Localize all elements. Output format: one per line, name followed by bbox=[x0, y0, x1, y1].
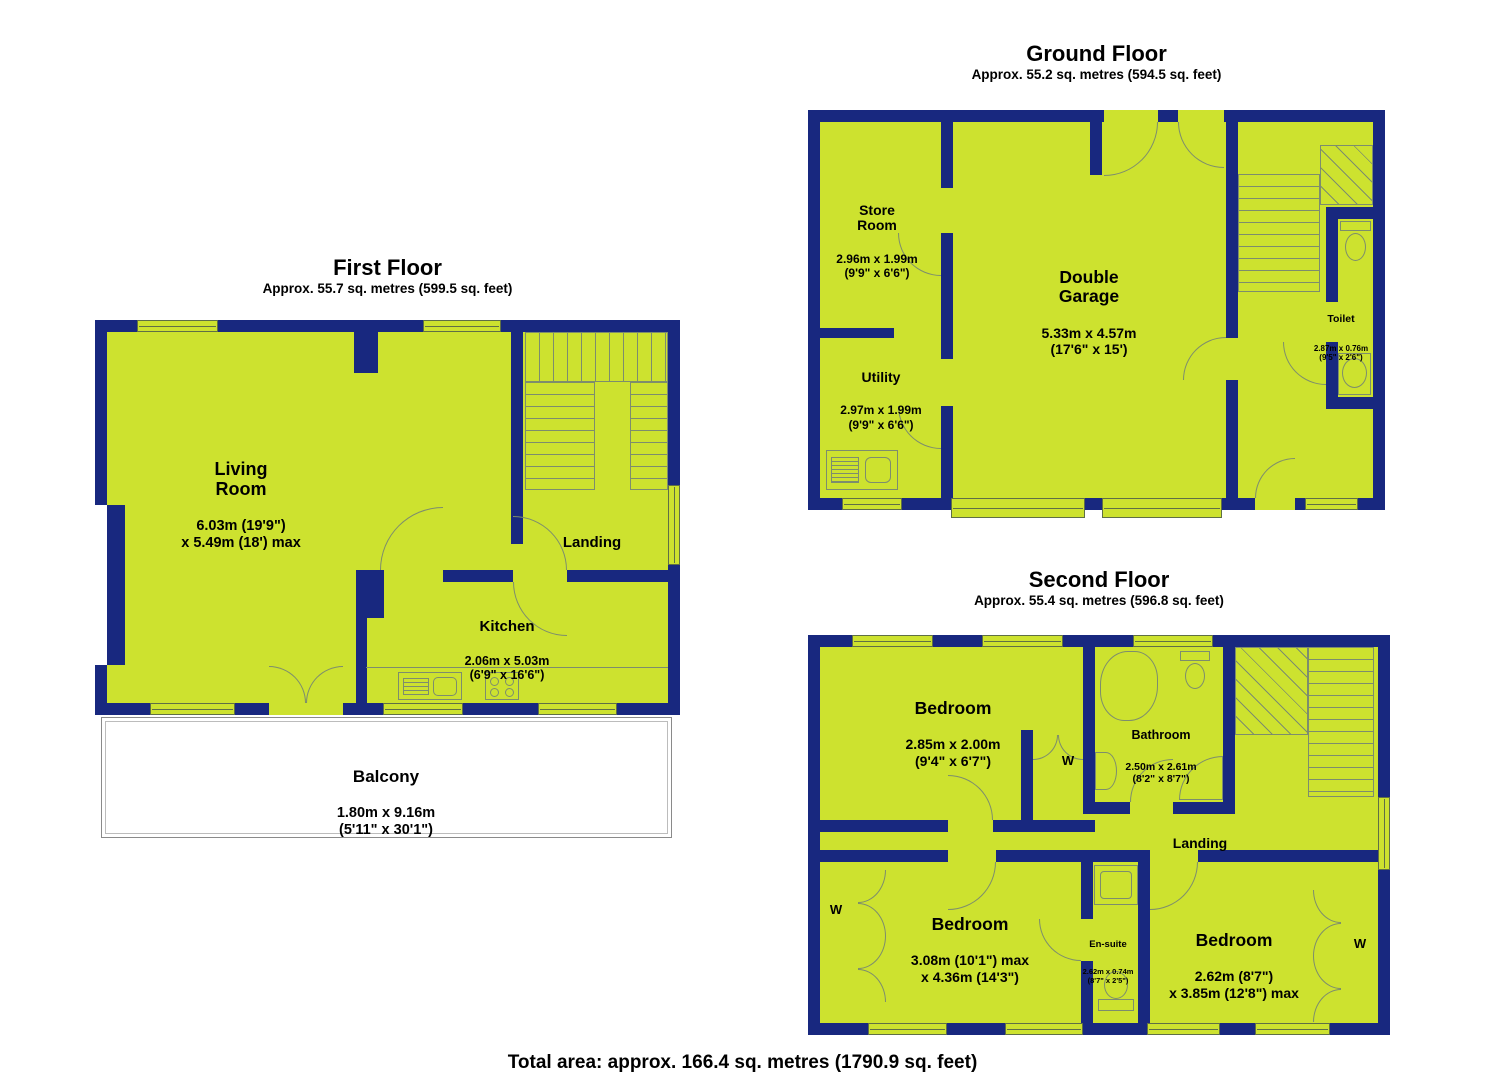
second-floor-subtitle: Approx. 55.4 sq. metres (596.8 sq. feet) bbox=[808, 592, 1390, 610]
door-opening bbox=[1255, 498, 1295, 510]
utility-label: Utility 2.97m x 1.99m (9'9" x 6'6") bbox=[821, 352, 941, 450]
shower-tray bbox=[1100, 871, 1132, 899]
staircase bbox=[525, 382, 595, 490]
window bbox=[538, 703, 617, 715]
wall bbox=[1226, 380, 1238, 498]
double-garage-label: Double Garage 5.33m x 4.57m (17'6" x 15'… bbox=[1009, 250, 1169, 376]
wall bbox=[443, 570, 513, 582]
room-dims: 2.62m (8'7") x 3.85m (12'8") max bbox=[1134, 968, 1334, 1001]
room-name: Bedroom bbox=[853, 699, 1053, 718]
room-dims: 6.03m (19'9") x 5.49m (18') max bbox=[141, 518, 341, 552]
bedroom-label: Bedroom 3.08m (10'1") max x 4.36m (14'3"… bbox=[870, 897, 1070, 1003]
staircase bbox=[1308, 647, 1374, 797]
ground-floor-header: Ground Floor Approx. 55.2 sq. metres (59… bbox=[808, 42, 1385, 84]
window bbox=[852, 635, 933, 647]
wall bbox=[1081, 850, 1093, 919]
staircase bbox=[1320, 145, 1373, 205]
wall bbox=[820, 820, 948, 832]
toilet-cistern bbox=[1180, 651, 1210, 661]
toilet-cistern bbox=[1340, 221, 1371, 231]
landing-label: Landing bbox=[532, 517, 652, 570]
floorplan-sheet: First Floor Approx. 55.7 sq. metres (599… bbox=[0, 0, 1485, 1080]
ground-floor-title: Ground Floor bbox=[808, 42, 1385, 66]
room-dims: 2.87m x 0.76m (9'5" x 2'6") bbox=[1286, 344, 1396, 363]
window bbox=[1005, 1023, 1083, 1035]
room-dims: 2.06m x 5.03m (6'9" x 16'6") bbox=[427, 654, 587, 684]
staircase bbox=[1238, 174, 1320, 292]
window bbox=[150, 703, 235, 715]
room-name: Double Garage bbox=[1009, 268, 1169, 307]
wall bbox=[996, 850, 1150, 862]
utility-sink bbox=[826, 450, 898, 490]
wardrobe-label: W bbox=[826, 902, 846, 917]
first-floor-plan: Living Room 6.03m (19'9") x 5.49m (18') … bbox=[95, 320, 680, 715]
window bbox=[1255, 1023, 1330, 1035]
door-opening bbox=[1178, 110, 1224, 122]
landing-label: Landing bbox=[1140, 818, 1260, 869]
wall bbox=[1226, 122, 1238, 338]
bedroom-label: Bedroom 2.62m (8'7") x 3.85m (12'8") max bbox=[1134, 913, 1334, 1019]
wall bbox=[1326, 207, 1373, 219]
room-dims: 1.80m x 9.16m (5'11" x 30'1") bbox=[206, 805, 566, 839]
room-name: Utility bbox=[821, 370, 941, 385]
wall bbox=[511, 332, 523, 544]
french-door-opening bbox=[269, 703, 343, 715]
total-area-label: Total area: approx. 166.4 sq. metres (17… bbox=[0, 1052, 1485, 1074]
window bbox=[1378, 797, 1390, 870]
room-dims: 2.97m x 1.99m (9'9" x 6'6") bbox=[821, 403, 941, 431]
room-name: Store Room bbox=[816, 203, 938, 234]
room-name: Toilet bbox=[1286, 314, 1396, 326]
bathroom-label: Bathroom 2.50m x 2.61m (8'2" x 8'7") bbox=[1081, 711, 1241, 804]
wall bbox=[941, 233, 953, 359]
wall bbox=[107, 505, 125, 665]
window bbox=[1305, 498, 1358, 510]
wall bbox=[941, 406, 953, 498]
window bbox=[137, 320, 218, 332]
first-floor-subtitle: Approx. 55.7 sq. metres (599.5 sq. feet) bbox=[95, 280, 680, 298]
room-name: Landing bbox=[1140, 836, 1260, 851]
room-name: Bedroom bbox=[870, 915, 1070, 934]
room-dims: 3.08m (10'1") max x 4.36m (14'3") bbox=[870, 952, 1070, 985]
ground-floor-plan: Store Room 2.96m x 1.99m (9'9" x 6'6") U… bbox=[808, 110, 1385, 510]
wall bbox=[941, 122, 953, 188]
wall bbox=[1083, 802, 1130, 814]
window bbox=[423, 320, 501, 332]
room-name: Kitchen bbox=[427, 619, 587, 636]
staircase bbox=[1235, 647, 1308, 735]
room-name: Living Room bbox=[141, 460, 341, 500]
window bbox=[668, 485, 680, 565]
wall bbox=[1090, 122, 1102, 175]
kitchen-label: Kitchen 2.06m x 5.03m (6'9" x 16'6") bbox=[427, 601, 587, 701]
window bbox=[383, 703, 463, 715]
room-dims: 2.85m x 2.00m (9'4" x 6'7") bbox=[853, 736, 1053, 769]
wall bbox=[567, 570, 668, 582]
second-floor-header: Second Floor Approx. 55.4 sq. metres (59… bbox=[808, 568, 1390, 610]
first-floor-title: First Floor bbox=[95, 256, 680, 280]
bathroom-wc bbox=[1185, 663, 1205, 689]
wall bbox=[820, 328, 894, 338]
first-floor-header: First Floor Approx. 55.7 sq. metres (599… bbox=[95, 256, 680, 298]
bedroom-label: Bedroom 2.85m x 2.00m (9'4" x 6'7") bbox=[853, 681, 1053, 787]
living-room-label: Living Room 6.03m (19'9") x 5.49m (18') … bbox=[141, 442, 341, 570]
window bbox=[842, 498, 902, 510]
sink-drainer bbox=[403, 678, 429, 695]
wall bbox=[354, 332, 378, 373]
wardrobe-label: W bbox=[1058, 753, 1078, 768]
room-name: Landing bbox=[532, 535, 652, 552]
toilet-label: Toilet 2.87m x 0.76m (9'5" x 2'6") bbox=[1286, 296, 1396, 380]
second-floor-title: Second Floor bbox=[808, 568, 1390, 592]
wardrobe-label: W bbox=[1350, 936, 1370, 951]
room-dims: 2.96m x 1.99m (9'9" x 6'6") bbox=[816, 252, 938, 280]
second-floor-plan: Bedroom 2.85m x 2.00m (9'4" x 6'7") Bath… bbox=[808, 635, 1390, 1035]
staircase bbox=[630, 382, 668, 490]
store-room-label: Store Room 2.96m x 1.99m (9'9" x 6'6") bbox=[816, 185, 938, 298]
room-dims: 5.33m x 4.57m (17'6" x 15') bbox=[1009, 325, 1169, 358]
balcony-label: Balcony 1.80m x 9.16m (5'11" x 30'1") bbox=[206, 750, 566, 857]
wall bbox=[1021, 820, 1095, 832]
garage-door bbox=[1102, 498, 1222, 518]
ensuite-shower bbox=[1094, 865, 1138, 905]
wall bbox=[356, 570, 367, 703]
window bbox=[982, 635, 1063, 647]
wall bbox=[993, 820, 1021, 832]
sink-drainer bbox=[831, 457, 859, 483]
ground-floor-subtitle: Approx. 55.2 sq. metres (594.5 sq. feet) bbox=[808, 66, 1385, 84]
room-name: Balcony bbox=[206, 768, 566, 787]
wall bbox=[820, 850, 948, 862]
room-name: Bathroom bbox=[1081, 729, 1241, 743]
staircase bbox=[525, 332, 668, 382]
garage-door bbox=[951, 498, 1085, 518]
wall bbox=[1326, 397, 1373, 409]
wall bbox=[1173, 802, 1235, 814]
wall bbox=[1326, 219, 1338, 302]
wall-recess bbox=[95, 505, 107, 665]
sink-bowl bbox=[865, 457, 891, 483]
window bbox=[868, 1023, 947, 1035]
room-dims: 2.50m x 2.61m (8'2" x 8'7") bbox=[1081, 761, 1241, 786]
window bbox=[1133, 635, 1213, 647]
toilet-wc bbox=[1345, 233, 1366, 261]
door-opening bbox=[1104, 110, 1158, 122]
room-name: Bedroom bbox=[1134, 931, 1334, 950]
window bbox=[1147, 1023, 1220, 1035]
